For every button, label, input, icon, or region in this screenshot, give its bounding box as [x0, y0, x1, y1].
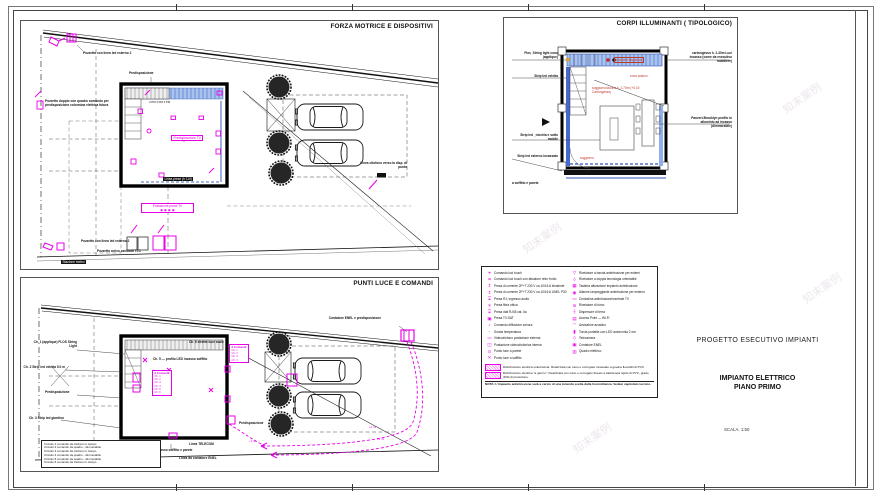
legend-symbol-icon: ⊚ — [570, 304, 579, 309]
legend-symbol-icon: ◇ — [570, 336, 579, 341]
comandi-list-box: 6 Comandi Ch. 1Ch. 2Ch. 3Ch. 4Ch. 5Ch. 6 — [152, 370, 172, 396]
cad-sheet: { "sheet": { "watermark": "知末案例" }, "col… — [0, 0, 880, 495]
legend-symbol-icon: ◠ — [570, 323, 579, 328]
fold-mark — [528, 4, 529, 11]
legend-symbol-icon: ▽ — [570, 271, 579, 276]
label-pozzetto-led-bottom: Pozzetto con linea led esterno 2 — [81, 239, 129, 243]
legend-text: Videocitofono postazione esterna — [494, 337, 540, 340]
label-postazione-prese-tv: Postazione prese TV ▣ ▣ ▣ ▣ — [141, 203, 194, 213]
label-linea: Linea prese (h 110) — [163, 177, 193, 181]
legend-symbol-icon: ⌖ — [485, 271, 494, 276]
legend-columns: ⌖ Comando luci touch ⌗ Comando luci touc… — [482, 267, 657, 362]
fold-mark — [528, 484, 529, 491]
legend-symbol-icon: ♪ — [485, 323, 494, 328]
legend-text: Postazione videocitofonica interna — [494, 344, 542, 347]
distribution-hatch-icon — [485, 364, 501, 371]
panel-forza-motrice: FORZA MOTRICE E DISPOSITIVI — [20, 20, 439, 270]
legend-symbol-icon: ⏚ — [570, 310, 579, 315]
legend-text: Presa TV-SAT — [494, 317, 514, 320]
label-panzeri: Panzeri-Brooklyn profilo in alluminio ad… — [680, 116, 732, 128]
legend-text: Contatore ENEL — [579, 344, 602, 347]
distribution-hatch-icon — [485, 372, 501, 379]
legend-symbol-icon: ↥ — [485, 291, 494, 296]
legend-column-left: ⌖ Comando luci touch ⌗ Comando luci touc… — [485, 270, 570, 362]
comandi-line: Ch. 6 — [155, 391, 170, 394]
legend-symbol-icon: ◊ — [570, 278, 579, 283]
room-zona-pranzo: zona pranzo — [630, 74, 648, 78]
legend-symbol-icon: ▥ — [570, 350, 579, 355]
legend-wide-row: Distribuzione elettrica sottotraccia. Re… — [485, 364, 654, 371]
legend-row: ▥ Quadro elettrico — [570, 349, 655, 356]
legend-text: Comando luci touch con attuatore retro f… — [494, 278, 556, 281]
legend-text: Avvisatore acustico — [579, 324, 606, 327]
legend-text: Presa dati RJ45 cat. 6a — [494, 311, 527, 314]
legend-wide-text: Distribuzione elettrica sottotraccia. Re… — [503, 366, 645, 369]
legend-symbol-icon: ◫ — [485, 343, 494, 348]
postazione-symbols: ▣ ▣ ▣ ▣ — [160, 208, 175, 212]
label-linea-citofono: Linea citofono verso la disp. di punto — [351, 161, 407, 169]
legend-symbol-icon: ⌾ — [485, 304, 494, 309]
legend-text: Centralina antintrusione/centrale TV — [579, 298, 629, 301]
legend-symbol-icon: ▣ — [485, 317, 494, 322]
legend-text: Presa di corrente 2P+T 230 V ca 10/16 A … — [494, 291, 567, 294]
legend-text: Dispersore di terra — [579, 311, 605, 314]
label-contatore-enel: Contatore ENEL e predisposizione — [311, 316, 381, 320]
label-predisposizione-tv: Predisposizione TV — [171, 135, 203, 141]
comandi-side-line: Ch. 4 — [232, 359, 247, 362]
legend-symbol-icon: ▣ — [570, 343, 579, 348]
label-ch3: Ch. 3 Strip led giardino — [29, 416, 64, 420]
legend-text: Allarme lampeggiante antintrusione per e… — [579, 291, 645, 294]
legend-wide-rows: Distribuzione elettrica sottotraccia. Re… — [482, 362, 657, 379]
room-soggiorno-cucina: soggiorno/cucina h. 2.70m (+0.15 Cartong… — [592, 86, 640, 94]
label-ch5: Ch. 5 — profilo LED incasso soffitto — [153, 357, 207, 361]
titleblock-line2: IMPIANTO ELETTRICO — [660, 374, 855, 383]
legend-symbol-icon: ✕ — [485, 356, 494, 361]
circuito-note-line: Circuito 6 comando da citofono in campo — [44, 461, 158, 465]
titleblock-scale: SCALA: 1:50 — [724, 427, 749, 432]
label-pozzetto-led-top: Pozzetto con linea led esterno 2 — [83, 51, 131, 55]
fold-mark — [352, 484, 353, 491]
legend-column-right: ▽ Rivelatore a banda antintrusione per e… — [570, 270, 655, 362]
fold-mark — [352, 4, 353, 11]
label-pozzetto-tlc: Pozzetto arrivo cavidotti TLC — [97, 249, 141, 253]
legend-symbol-icon: ↥ — [485, 284, 494, 289]
legend-symbol-icon: ⌗ — [485, 278, 494, 283]
label-pozzetto-colonnina: Pozzetto doppio con quadro comando per p… — [45, 99, 111, 107]
label-strip-veletta: Strip led veletta — [510, 74, 558, 78]
label-plus1mt-a: +1 mt — [369, 426, 376, 429]
forza-site-plan-drawing — [21, 21, 438, 269]
label-ch1: Ch. 1 (applique) FLOS String Light — [25, 340, 77, 348]
fold-mark — [176, 4, 177, 11]
label-ch2: Ch. 2 Strip led veletta 5.0 m — [21, 365, 65, 369]
legend-text: Rivelatore a doppia tecnologia orientabi… — [579, 278, 637, 281]
legend-text: Punto luce a soffitto — [494, 357, 522, 360]
label-soffitto-parete: a soffitto e parete — [512, 181, 539, 185]
legend-symbol-icon: ▭ — [570, 297, 579, 302]
legend-text: Rivelatore a banda antintrusione per est… — [579, 272, 640, 275]
titleblock-project-line: PROGETTO ESECUTIVO IMPIANTI — [660, 337, 855, 344]
legend-text: Presa RJ; ingresso audio — [494, 298, 529, 301]
legend-nota: NOTA: L'impianto antintrusione sarà a ca… — [485, 381, 654, 387]
label-strip-nicchia: Strip led _nicchia e sotto mobile — [510, 133, 558, 141]
legend-text: Presa di corrente 2P+T 230 V ca 10/16 A … — [494, 285, 564, 288]
label-plus1mt-c: +1 mt — [249, 440, 256, 443]
label-predisposizione: Predisposizione — [129, 71, 153, 75]
room-cucina-dispensa: cucina e dispensa — [614, 57, 644, 63]
legend-text: Sonda temperatura — [494, 331, 521, 334]
legend-text: Telecamera — [579, 337, 595, 340]
legend-symbol-icon: ⊙ — [485, 350, 494, 355]
legend-text: Comando diffusione sonora — [494, 324, 532, 327]
label-dimensioni: 4 PM 4 PM 4 PM — [149, 101, 170, 104]
fold-mark — [176, 484, 177, 491]
legend-symbol-icon: ⌻ — [485, 310, 494, 315]
room-soggiorno: soggiorno — [580, 156, 594, 160]
legend-text: Access Point — Wi-Fi — [579, 317, 609, 320]
label-flos-string: Flos_String light cono (applique) — [510, 51, 558, 59]
legend-text: Torcia portatile con LED autonomia 2 ore — [579, 331, 636, 334]
label-linea-telecom: Linea TELECOM — [189, 442, 214, 446]
titleblock-margin-line — [855, 10, 856, 486]
comandi-side-box: 6 Comandi Ch. 1Ch. 2Ch. 3Ch. 4 — [229, 344, 249, 363]
fold-mark — [704, 484, 705, 491]
label-cartongesso: cartongesso h. 2.40m Luci incasso (come … — [680, 51, 732, 63]
panel-corpi-illuminanti: CORPI ILLUMINANTI ( TIPOLOGICO) — [503, 17, 738, 214]
legend-symbol-icon: ▦ — [570, 284, 579, 289]
legend-symbol-icon: ◉ — [570, 291, 579, 296]
legend-wide-text: Distribuzione elettrica "a giorno". Real… — [503, 372, 654, 379]
legend-text: Quadro elettrico — [579, 350, 601, 353]
panel-punti-luce: PUNTI LUCE E COMANDI — [20, 277, 439, 472]
legend-text: Presa fibra ottica — [494, 304, 518, 307]
label-strip-esterno: Strip led esterno incassato — [510, 154, 558, 158]
legend-text: Comando luci touch — [494, 272, 522, 275]
label-predisposizione-left: Predisposizione — [45, 390, 69, 394]
legend-wide-row: Distribuzione elettrica "a giorno". Real… — [485, 372, 654, 379]
legend-symbol-icon: ⌻ — [485, 297, 494, 302]
circuiti-note-box: Circuito 1 comando da citofono in campoC… — [41, 440, 161, 468]
legend-text: Rivelatore di fumo — [579, 304, 604, 307]
legend-row: ✕ Punto luce a soffitto — [485, 355, 570, 362]
legend-text: Punto luce a parete — [494, 350, 521, 353]
label-plus1mt-b: +1 mt — [377, 438, 384, 441]
legend-box: ⌖ Comando luci touch ⌗ Comando luci touc… — [481, 266, 658, 398]
label-linea-enel: Linea da contatore ENEL — [179, 456, 217, 460]
legend-text: Tastiera attivazione impianto antintrusi… — [579, 285, 637, 288]
label-ch6: Ch. 6 diretto luce scale — [189, 340, 224, 344]
legend-symbol-icon: ◦ — [485, 330, 494, 335]
label-stazione-meteo: Stazione meteo — [61, 260, 86, 264]
titleblock-line3: PIANO PRIMO — [660, 383, 855, 392]
legend-symbol-icon: ▭ — [485, 336, 494, 341]
fold-mark — [704, 4, 705, 11]
titleblock-drawing-title: IMPIANTO ELETTRICO PIANO PRIMO — [660, 374, 855, 393]
label-predisposizione-right: Predisposizione — [239, 421, 263, 425]
legend-symbol-icon: ▮ — [570, 330, 579, 335]
legend-symbol-icon: ▤ — [570, 317, 579, 322]
